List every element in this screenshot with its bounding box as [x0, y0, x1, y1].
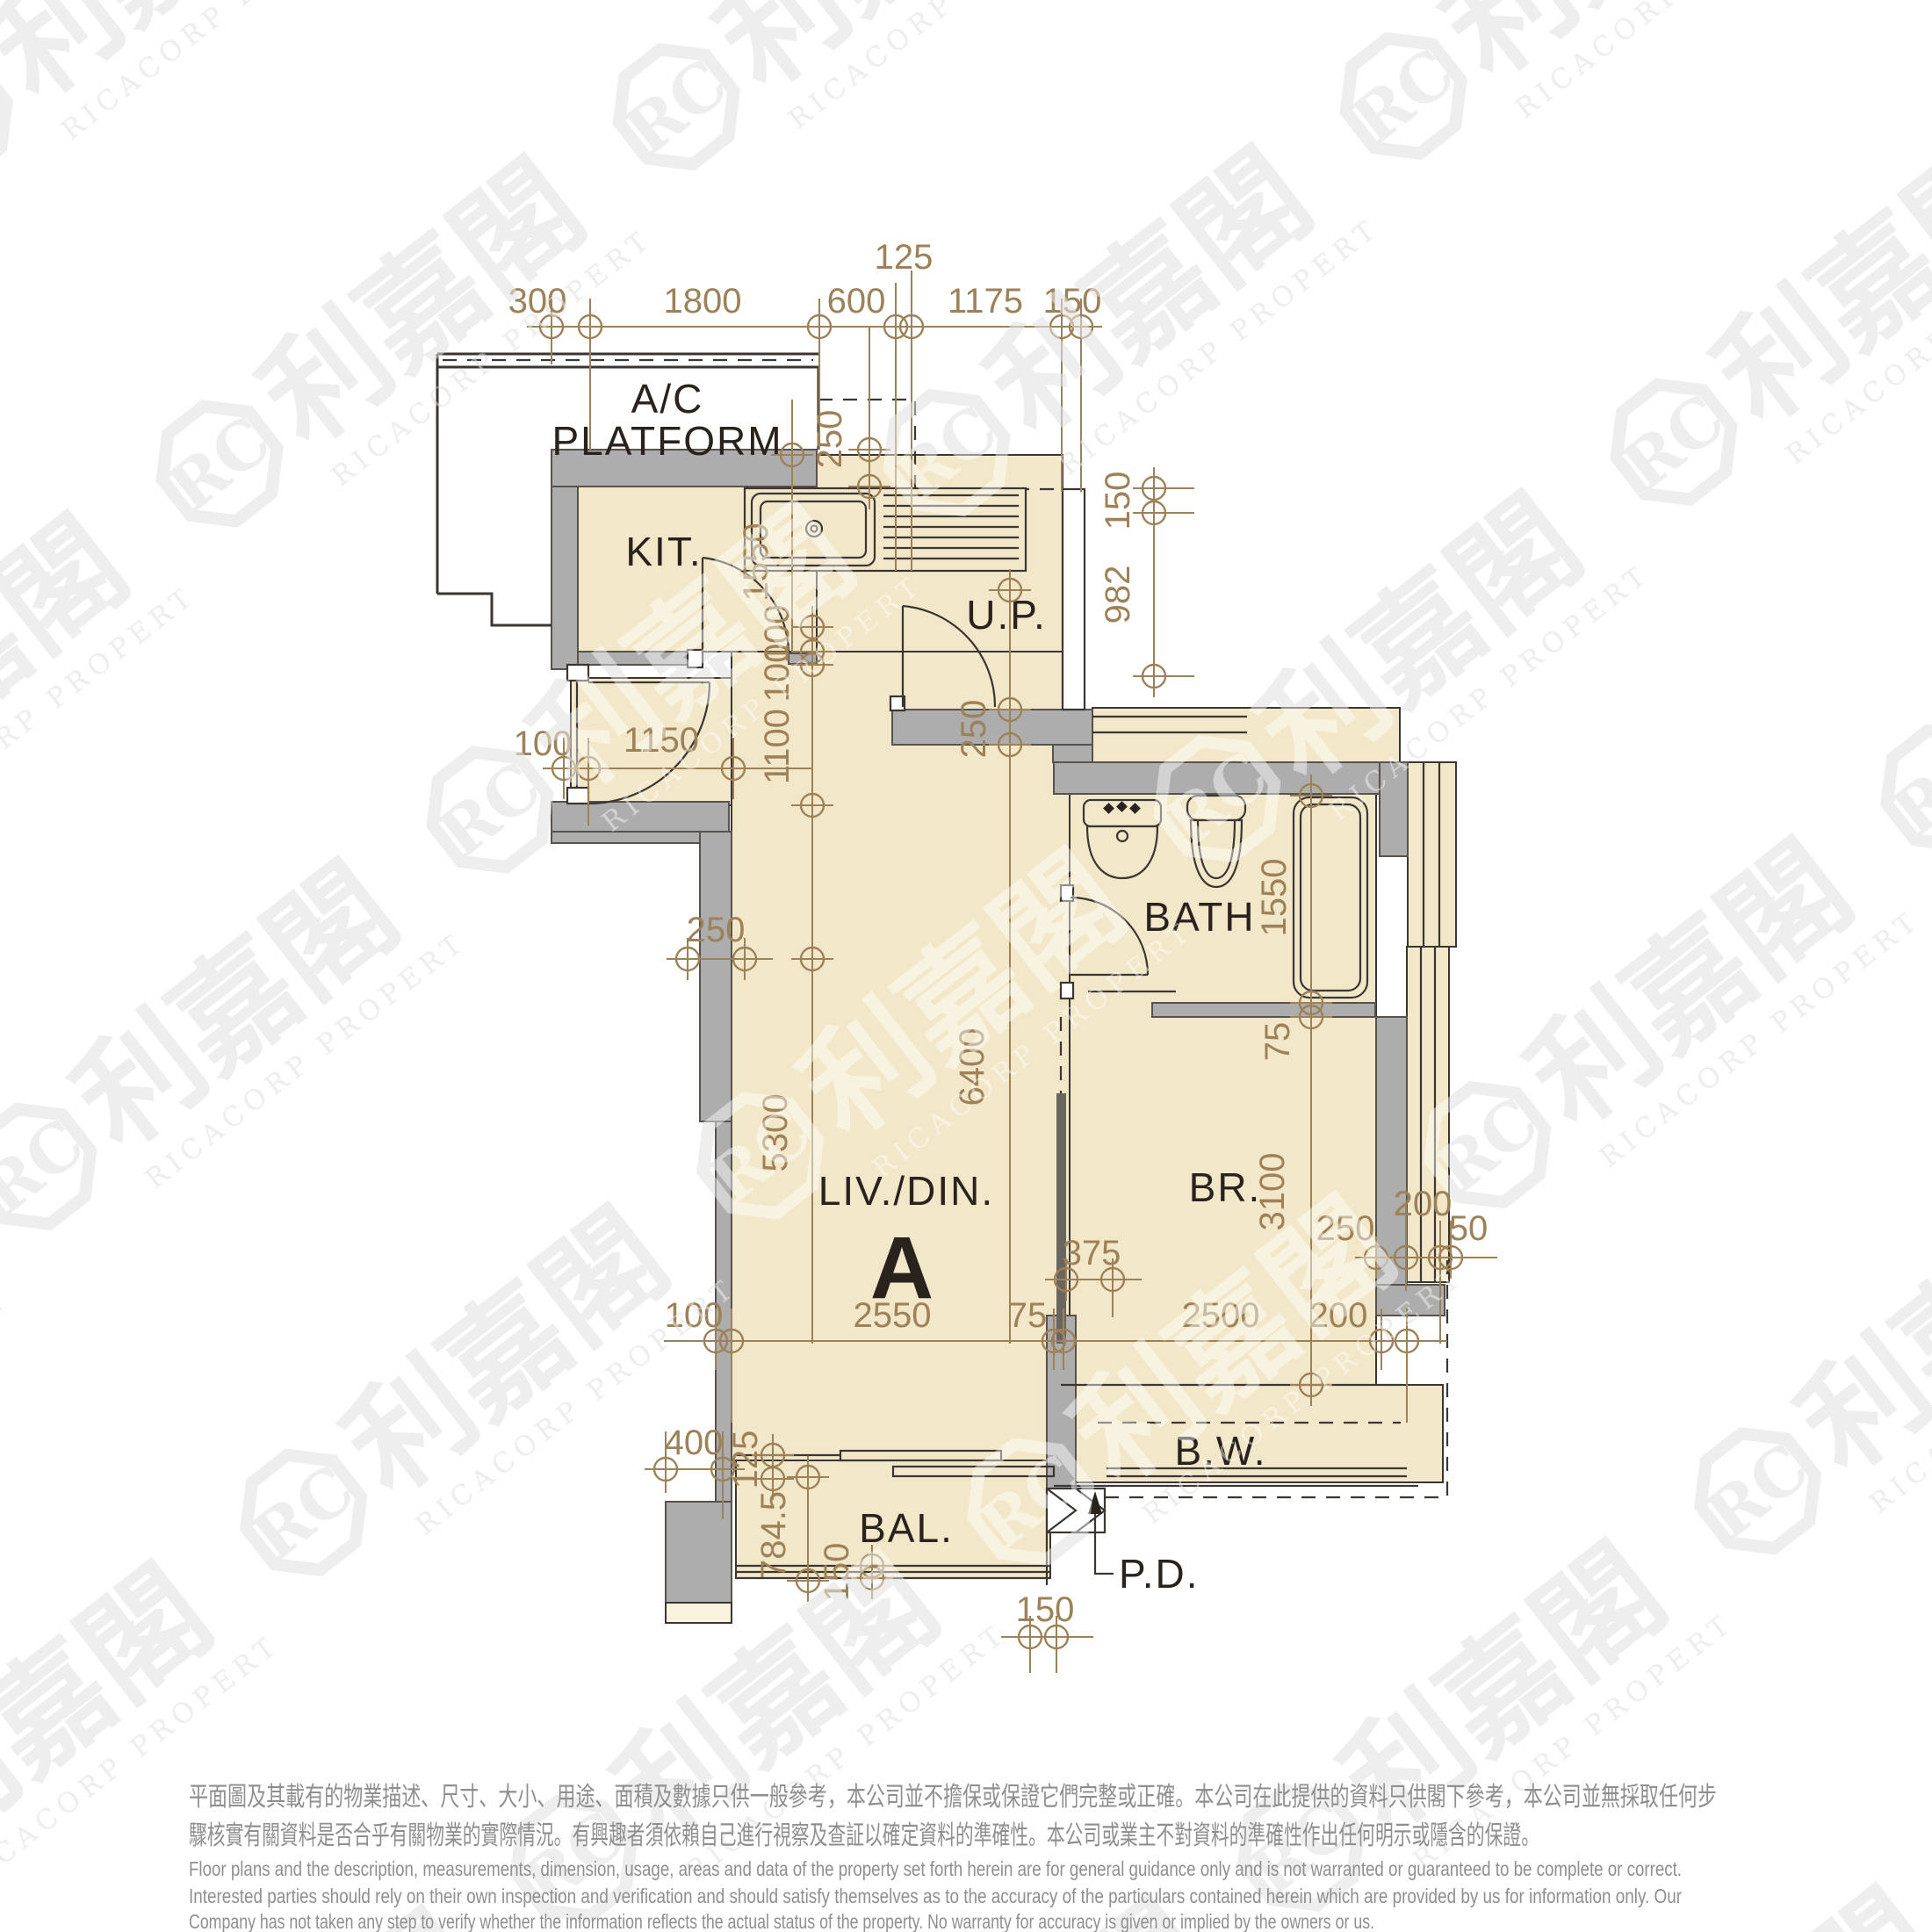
disclaimer-en-line1: Floor plans and the description, measure…: [189, 1857, 1682, 1880]
floorplan-svg: RC 利嘉閣 RICACORP PROPERTIES RC 利嘉閣 RICACO…: [0, 0, 1932, 1932]
disclaimer-en-line3: Company has not taken any step to verify…: [189, 1910, 1374, 1932]
disclaimer-zh-line2: 驟核實有關資料是否合乎有關物業的實際情況。有興趣者須依賴自己進行視察及查証以確定…: [189, 1821, 1539, 1850]
floorplan-page: RC 利嘉閣 RICACORP PROPERTIES RC 利嘉閣 RICACO…: [0, 0, 1932, 1932]
disclaimer-zh-line1: 平面圖及其載有的物業描述、尺寸、大小、用途、面積及數據只供一般參考，本公司並不擔…: [189, 1783, 1717, 1812]
watermark-layer-over: [0, 0, 1932, 1932]
disclaimer-en-line2: Interested parties should rely on their …: [189, 1885, 1682, 1907]
